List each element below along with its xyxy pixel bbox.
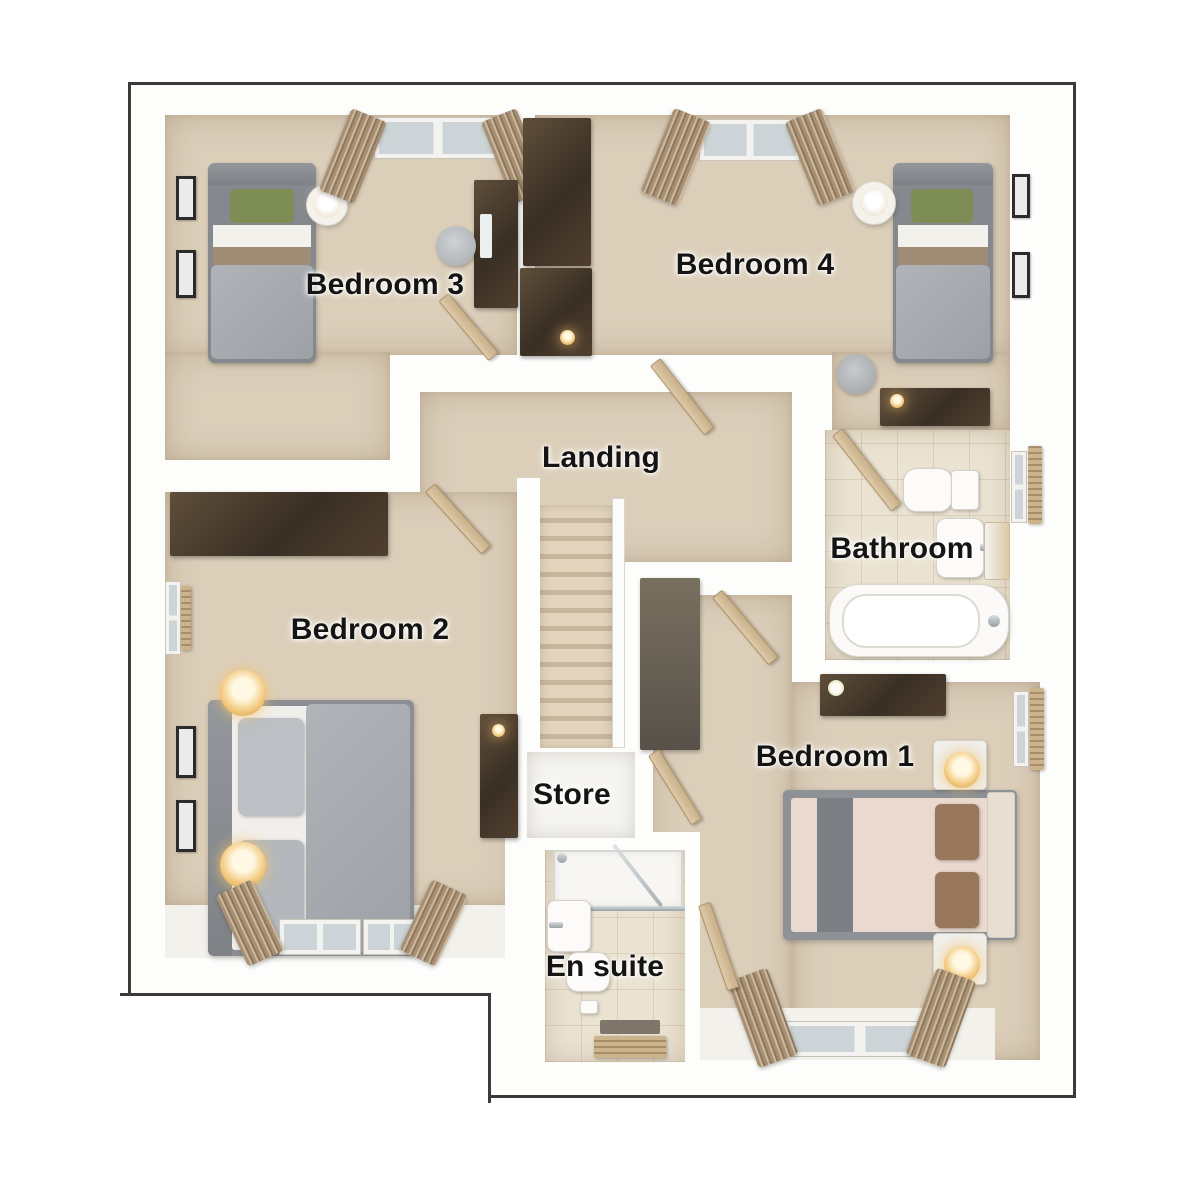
bedroom2-window-left xyxy=(166,582,180,654)
bedroom2-desk-lamp xyxy=(492,724,505,737)
bedroom2-label: Bedroom 2 xyxy=(291,613,450,647)
bathroom-toilet-bowl xyxy=(903,468,953,512)
landing-cupboard xyxy=(640,578,700,750)
bedroom3-single-bed xyxy=(208,163,316,363)
bedroom4-wall-art-1 xyxy=(1012,174,1030,218)
floor-plan-canvas: Bedroom 3 Bedroom 4 Landing Bathroom Bed… xyxy=(0,0,1200,1200)
bathroom-label: Bathroom xyxy=(830,532,973,566)
bathroom-bathtub xyxy=(829,584,1009,657)
bedroom1-window-right xyxy=(1014,692,1028,766)
bedroom2-lamp-top xyxy=(220,670,266,716)
bedroom4-ball-chair xyxy=(836,354,876,394)
bedroom3-wall-art-1 xyxy=(176,176,196,220)
bedroom4-desk xyxy=(520,268,592,356)
bed-headboard xyxy=(208,163,316,185)
bedroom3-stool xyxy=(436,226,476,266)
bedroom3-wall-art-2 xyxy=(176,250,196,298)
bedroom3-desk xyxy=(474,180,518,308)
bedroom4-label: Bedroom 4 xyxy=(676,248,835,282)
stairs-left-wall xyxy=(517,478,540,748)
bedroom4-desk-lamp xyxy=(560,330,575,345)
stair-railing xyxy=(612,498,625,748)
bedroom4-sideboard-lamp xyxy=(890,394,904,408)
bed-runner xyxy=(817,798,853,932)
bedroom4-lamp xyxy=(860,188,888,216)
bathroom-vanity xyxy=(984,522,1010,580)
ensuite-shower-head xyxy=(557,853,567,863)
bedroom2-window-blind xyxy=(181,586,191,650)
bedroom1-lamp-top xyxy=(944,752,980,788)
bathroom-window xyxy=(1012,452,1026,522)
bed-sheet xyxy=(213,225,311,247)
bathtub-tap xyxy=(988,615,1000,627)
bathroom-window-blind xyxy=(1028,446,1042,524)
bedroom1-desk-flower xyxy=(828,680,844,696)
bed-pillow-green xyxy=(911,189,973,223)
bathroom-toilet-tank xyxy=(951,470,979,510)
bed-pillow-1 xyxy=(238,718,304,816)
bedroom2-wardrobe xyxy=(170,492,388,556)
staircase xyxy=(540,505,612,748)
bed-taupe-band xyxy=(213,247,311,265)
bed-pillow-1 xyxy=(935,804,979,860)
bedroom3-floor-ext xyxy=(165,352,390,460)
desk-monitor xyxy=(480,214,492,258)
bed-duvet xyxy=(306,704,410,952)
ensuite-sink-tap xyxy=(549,922,563,928)
bed-headboard xyxy=(987,792,1015,938)
bed-duvet xyxy=(896,265,990,359)
bed-taupe-band xyxy=(898,247,988,265)
ensuite-drain xyxy=(600,1020,660,1034)
bedroom4-single-bed xyxy=(893,163,993,363)
bedroom4-wall-art-2 xyxy=(1012,252,1030,298)
store-label: Store xyxy=(533,778,611,812)
bathtub-basin xyxy=(842,594,980,648)
bedroom2-window-bottom-1 xyxy=(280,920,360,954)
ensuite-bin xyxy=(580,1000,598,1014)
bedroom1-window-blind xyxy=(1030,688,1044,770)
ensuite-label: En suite xyxy=(546,950,664,984)
bedroom1-double-bed xyxy=(783,790,1017,940)
bed-sheet xyxy=(898,225,988,247)
bed-headboard xyxy=(893,163,993,185)
bedroom2-wall-art-1 xyxy=(176,726,196,778)
bed-pillow-2 xyxy=(935,872,979,928)
ensuite-bath-mat xyxy=(594,1036,666,1058)
bedroom2-lamp-bottom xyxy=(220,842,266,888)
bedroom3-label: Bedroom 3 xyxy=(306,268,465,302)
bedroom4-wardrobe xyxy=(523,118,591,266)
bedroom2-wall-art-2 xyxy=(176,800,196,852)
bedroom1-label: Bedroom 1 xyxy=(756,740,915,774)
footprint-notch xyxy=(120,993,491,1103)
landing-label: Landing xyxy=(542,441,660,475)
bed-duvet xyxy=(211,265,313,359)
bed-pillow-green xyxy=(230,189,294,223)
